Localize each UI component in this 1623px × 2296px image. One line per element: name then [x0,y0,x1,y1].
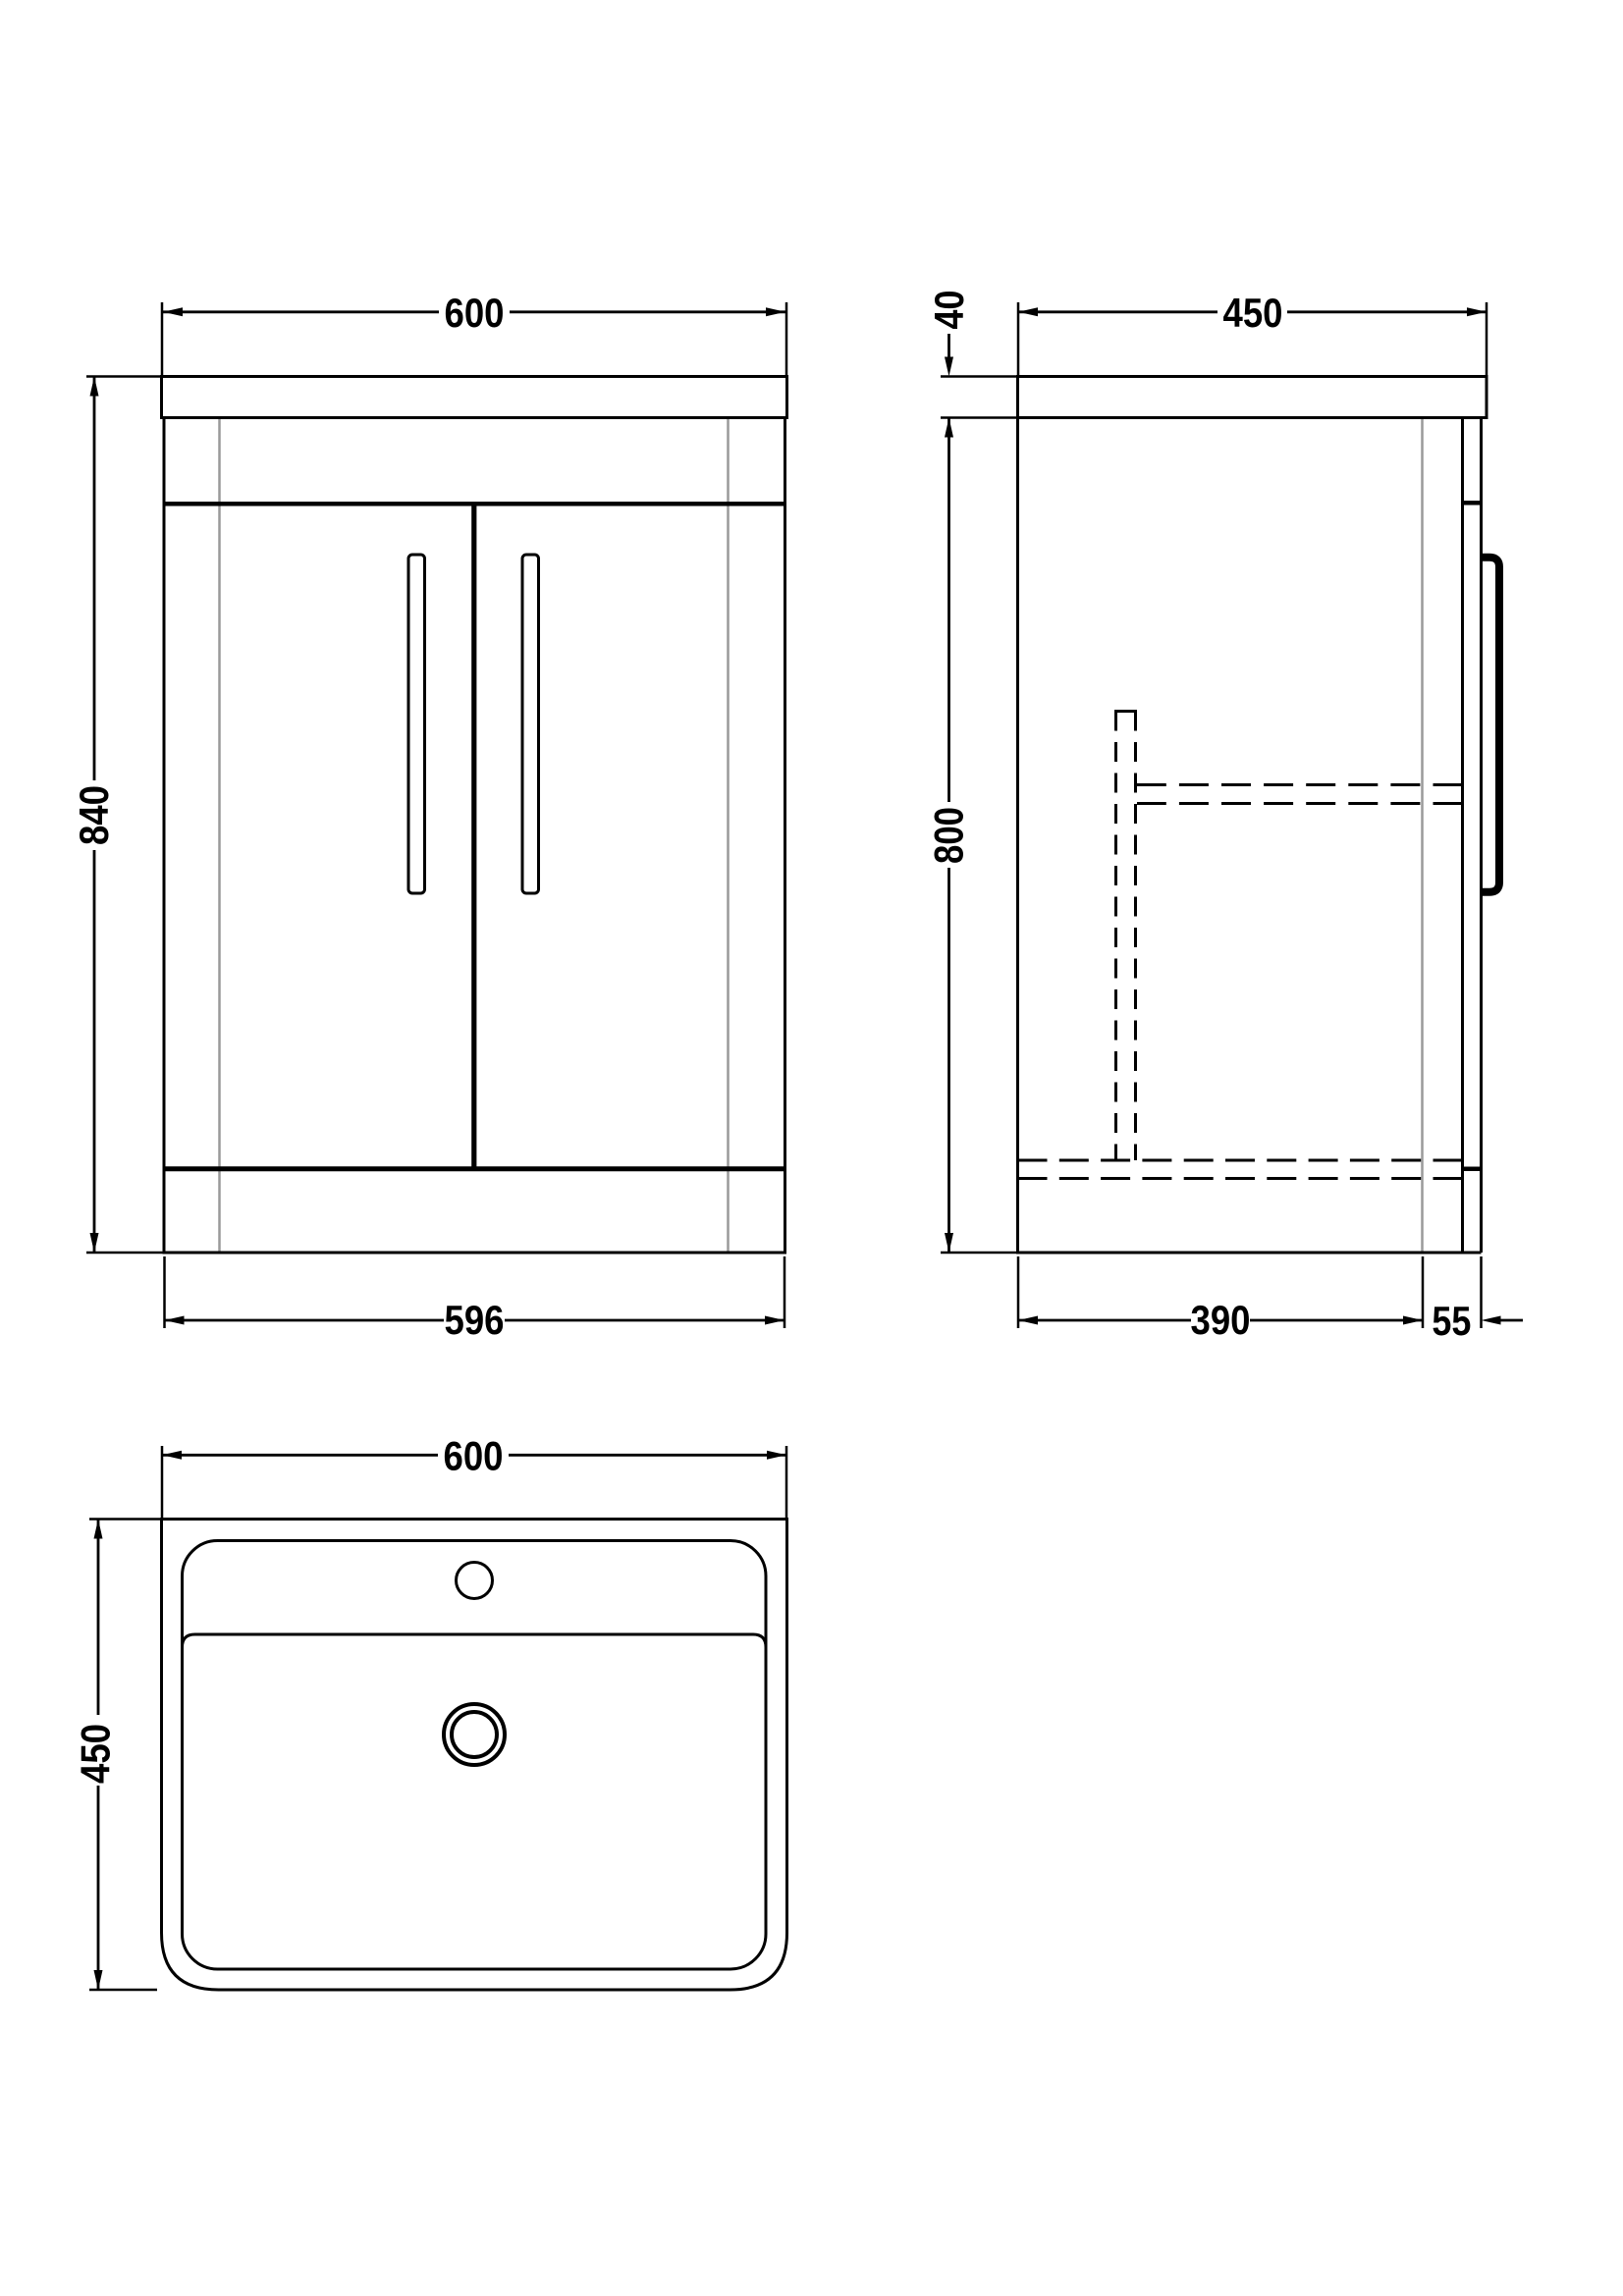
svg-text:450: 450 [1223,290,1283,336]
svg-text:390: 390 [1191,1297,1251,1343]
svg-text:600: 600 [445,290,505,336]
svg-text:450: 450 [73,1724,119,1784]
svg-text:600: 600 [444,1433,504,1479]
svg-text:55: 55 [1432,1298,1471,1344]
svg-text:840: 840 [71,785,117,845]
svg-text:40: 40 [926,291,972,330]
svg-text:596: 596 [445,1297,505,1343]
svg-text:800: 800 [926,807,972,864]
